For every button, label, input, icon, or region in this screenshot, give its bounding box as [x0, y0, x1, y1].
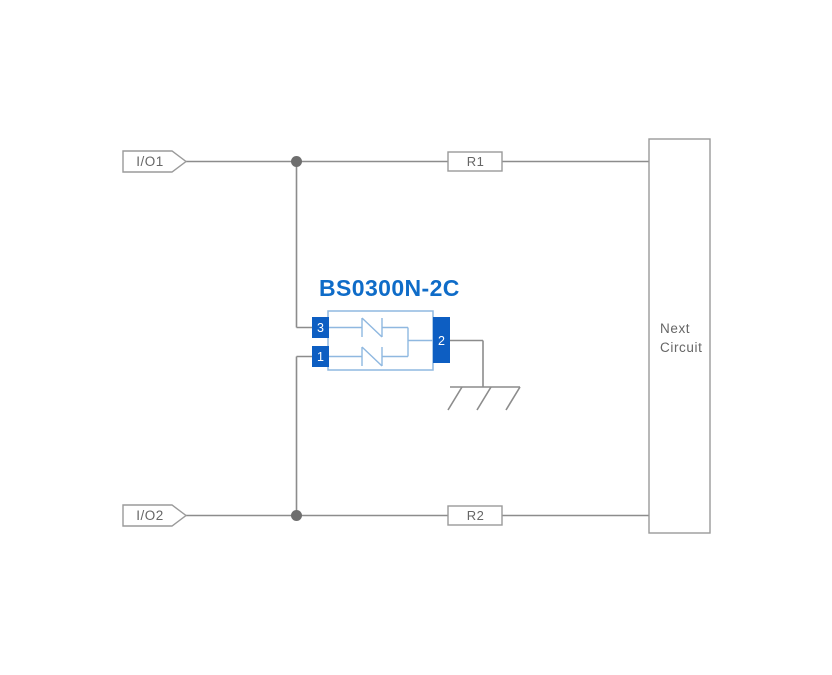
ground-hatch-1 — [448, 387, 462, 410]
ground-hatch-3 — [506, 387, 520, 410]
connector-io2: I/O2 — [123, 505, 186, 526]
junction-dot-top — [291, 156, 302, 167]
next-circuit-block: Next Circuit — [649, 139, 710, 533]
net-io1 — [186, 156, 649, 328]
r2-label: R2 — [467, 508, 485, 523]
schematic-canvas: I/O1 I/O2 R1 R2 Next Circuit BS0300N-2C — [0, 0, 832, 675]
pin2-number: 2 — [438, 334, 445, 348]
r1-label: R1 — [467, 154, 485, 169]
junction-dot-bottom — [291, 510, 302, 521]
next-circuit-box — [649, 139, 710, 533]
io1-label: I/O1 — [136, 154, 164, 169]
connector-io1: I/O1 — [123, 151, 186, 172]
component-title: BS0300N-2C — [319, 275, 460, 301]
pin1-number: 1 — [317, 350, 324, 364]
io2-label: I/O2 — [136, 508, 164, 523]
ground-symbol — [448, 341, 520, 411]
net-io2 — [186, 357, 649, 522]
pin-2: 2 — [433, 317, 450, 363]
pin-3: 3 — [312, 317, 329, 338]
pin-1: 1 — [312, 346, 329, 367]
next-circuit-label-line1: Next — [660, 321, 690, 336]
resistor-r1: R1 — [448, 152, 502, 171]
resistor-r2: R2 — [448, 506, 502, 525]
pin3-number: 3 — [317, 321, 324, 335]
next-circuit-label-line2: Circuit — [660, 340, 702, 355]
ground-hatch-2 — [477, 387, 491, 410]
circuit-diagram: I/O1 I/O2 R1 R2 Next Circuit BS0300N-2C — [0, 0, 832, 675]
tvs-component: BS0300N-2C — [312, 275, 460, 370]
